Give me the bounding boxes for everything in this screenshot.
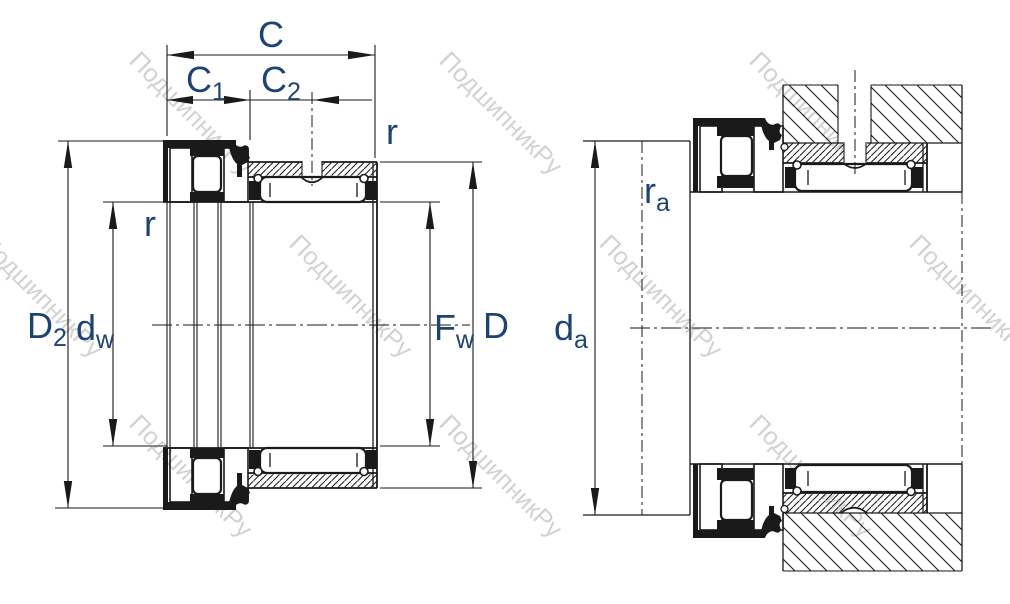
- watermark: ПодшипникРу: [284, 229, 418, 363]
- end-cap-band: [693, 530, 765, 538]
- arrowhead: [313, 96, 339, 104]
- left-view-top-half: [163, 140, 377, 202]
- arrowhead: [348, 51, 375, 59]
- arrowhead: [109, 419, 117, 446]
- arrowhead: [426, 202, 434, 229]
- needle-cage-block: [249, 450, 260, 469]
- arrowhead: [109, 202, 117, 229]
- retaining-ring: [254, 175, 262, 183]
- housing-hatch: [783, 85, 962, 143]
- thrust-cage-band: [717, 520, 754, 531]
- thrust-cage-band: [717, 176, 754, 188]
- arrowhead: [64, 481, 72, 508]
- dimension-label-ra: ra: [644, 170, 670, 217]
- thrust-cage-band: [190, 192, 224, 202]
- thrust-roller: [193, 156, 221, 192]
- retaining-ring: [793, 487, 801, 495]
- dimension-label-C: C: [258, 14, 284, 55]
- needle-cage-block: [785, 468, 795, 489]
- dimension-label-C1: C1: [186, 59, 226, 106]
- needle-cage-block: [785, 167, 795, 188]
- bearing-drawing-page: ПодшипникРу ПодшипникРу ПодшипникРу Подш…: [0, 0, 1010, 604]
- end-cap-band: [693, 118, 765, 126]
- corner-radius: [781, 144, 788, 151]
- end-cap-band: [163, 502, 236, 510]
- arrowhead: [469, 162, 477, 189]
- dimension-label-r-upper: r: [386, 111, 398, 152]
- needle-cage-block: [912, 167, 923, 188]
- bearing-cross-section-figure: ПодшипникРу ПодшипникРу ПодшипникРу Подш…: [0, 0, 1010, 604]
- left-view-dimensions: C C1 C2 r r D2 dw Fw D: [27, 14, 509, 508]
- end-cap-wall: [163, 448, 168, 510]
- end-cap-crimp: [760, 118, 782, 150]
- needle-roller: [260, 177, 366, 202]
- left-bearing-section-view: [152, 140, 470, 510]
- arrowhead: [426, 419, 434, 446]
- dimension-label-dw: dw: [76, 307, 115, 354]
- end-cap-band: [163, 140, 236, 148]
- retaining-ring: [360, 175, 368, 183]
- dimension-label-D: D: [483, 305, 509, 346]
- needle-cage-block: [366, 450, 377, 469]
- retaining-ring: [360, 468, 368, 476]
- retaining-ring: [907, 488, 915, 496]
- retaining-ring: [793, 161, 801, 169]
- thrust-cage-band: [717, 125, 754, 136]
- outer-sleeve-hatch: [248, 473, 377, 488]
- watermark: ПодшипникРу: [904, 229, 1010, 363]
- thrust-roller: [721, 136, 752, 176]
- thrust-roller: [721, 480, 752, 520]
- retaining-ring: [254, 468, 262, 476]
- right-view-dimensions: da ra: [554, 141, 670, 515]
- thrust-cage-band: [190, 494, 224, 503]
- thrust-cage-band: [717, 468, 754, 480]
- thrust-cage-band: [190, 147, 224, 156]
- corner-radius: [781, 506, 788, 513]
- dimension-label-C2: C2: [261, 59, 301, 106]
- needle-cage-block: [912, 468, 923, 489]
- thrust-washer-hatch: [170, 148, 192, 202]
- thrust-cage-band: [190, 448, 224, 458]
- needle-cage-block: [366, 181, 377, 200]
- needle-cage-block: [249, 181, 260, 200]
- retaining-ring: [907, 161, 915, 169]
- end-cap-wall: [693, 118, 698, 192]
- end-cap-wall: [693, 464, 698, 538]
- end-cap-wall: [163, 140, 168, 202]
- left-view-bottom-half: [163, 448, 377, 510]
- dimension-label-Fw: Fw: [434, 307, 475, 354]
- needle-roller: [795, 465, 912, 492]
- watermark: ПодшипникРу: [594, 229, 728, 363]
- needle-roller: [260, 448, 366, 473]
- arrowhead: [591, 141, 599, 168]
- arrowhead: [469, 461, 477, 488]
- watermark: ПодшипникРу: [434, 409, 568, 543]
- arrowhead: [224, 96, 250, 104]
- housing-hatch: [783, 513, 962, 571]
- end-cap-crimp: [760, 506, 782, 538]
- arrowhead: [167, 51, 194, 59]
- thrust-roller: [193, 458, 221, 494]
- arrowhead: [64, 141, 72, 168]
- arrowhead: [591, 488, 599, 515]
- right-mounted-section-view: [583, 70, 995, 571]
- dimension-label-da: da: [554, 307, 588, 354]
- dimension-label-r-lower: r: [144, 203, 156, 244]
- watermark: ПодшипникРу: [434, 46, 568, 180]
